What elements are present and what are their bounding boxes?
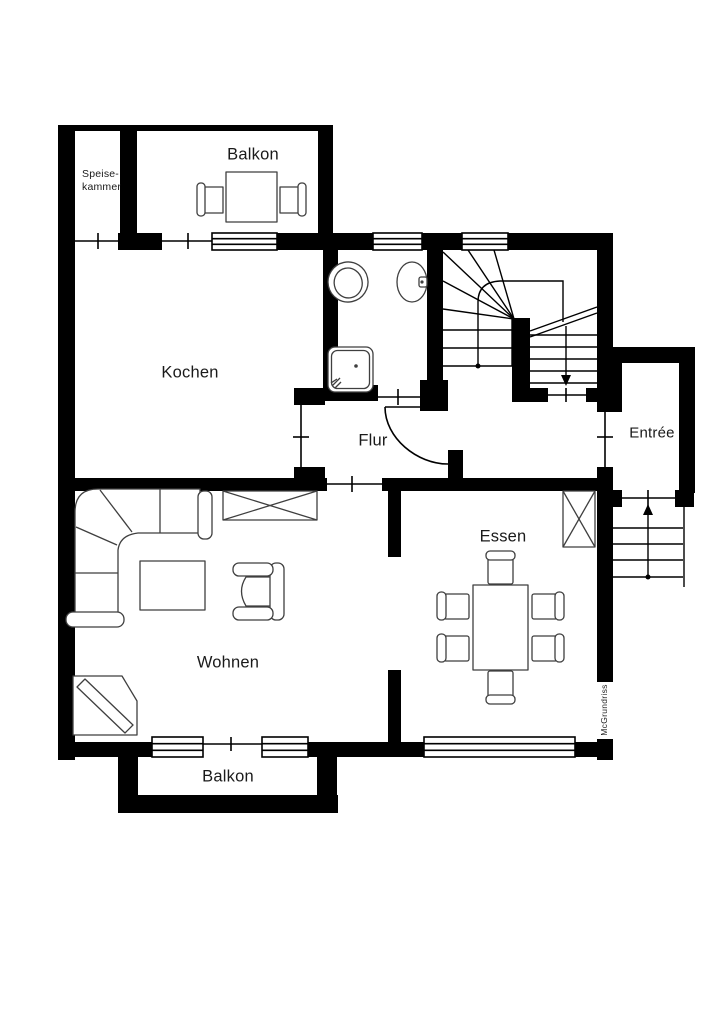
- door-entree-outer: [622, 490, 675, 506]
- room-label-balkon-top: Balkon: [227, 146, 279, 165]
- wardrobe-dining-icon: [563, 491, 595, 547]
- wall-balcony-bottom: [118, 795, 338, 813]
- door-balcony-top: [162, 233, 212, 249]
- room-label-balkon-bottom: Balkon: [202, 768, 254, 787]
- wall-speisekammer-divider: [120, 131, 137, 241]
- window-living-2: [262, 737, 308, 757]
- staircase-exterior: [613, 504, 684, 587]
- stair-down-arrow: [561, 375, 571, 386]
- door-bathroom: [378, 389, 420, 405]
- wall-left-outer: [58, 125, 75, 760]
- dining-table-icon: [473, 585, 528, 670]
- window-balcony-door-top: [212, 233, 277, 250]
- window-bathroom: [373, 233, 422, 250]
- sink-icon: [397, 262, 427, 302]
- door-speisekammer: [75, 233, 118, 249]
- wall-balcony-top-parapet: [58, 125, 333, 131]
- floor-plan-page: Balkon Speise- kammer Kochen Flur Entrée…: [0, 0, 724, 1024]
- wall-bath-right: [427, 250, 443, 382]
- window-stairwell: [462, 233, 508, 250]
- window-dining: [424, 737, 575, 757]
- window-living-1: [152, 737, 203, 757]
- room-label-entree: Entrée: [629, 425, 674, 442]
- wardrobe-living-icon: [223, 491, 317, 520]
- balcony-table-set-icon: [197, 172, 306, 222]
- door-entree-inner: [597, 412, 613, 467]
- floor-plan-drawing: [0, 0, 724, 1024]
- wall-balcony-top-right: [318, 125, 333, 250]
- wall-balcony-bottom-right: [317, 742, 337, 813]
- room-label-wohnen: Wohnen: [197, 654, 259, 673]
- watermark-text: McGrundriss: [599, 684, 609, 735]
- room-label-speisekammer: Speise- kammer: [82, 168, 121, 193]
- door-swing-hall: [385, 407, 448, 464]
- door-stair-under: [548, 388, 586, 402]
- door-kitchen-hall: [293, 405, 309, 467]
- door-hall-living: [327, 476, 382, 492]
- shower-icon: [328, 347, 373, 392]
- coffee-table-icon: [140, 561, 205, 610]
- room-label-kochen: Kochen: [161, 364, 218, 383]
- stair-up-arrow: [643, 504, 653, 515]
- armchair-icon: [233, 563, 284, 620]
- wall-stair-spine: [512, 318, 530, 402]
- dining-set-icon: [437, 551, 564, 704]
- room-label-flur: Flur: [358, 432, 387, 451]
- french-window-living: [200, 737, 262, 751]
- room-label-essen: Essen: [480, 528, 527, 547]
- wall-entree-right: [679, 347, 695, 493]
- tv-board-icon: [73, 676, 137, 735]
